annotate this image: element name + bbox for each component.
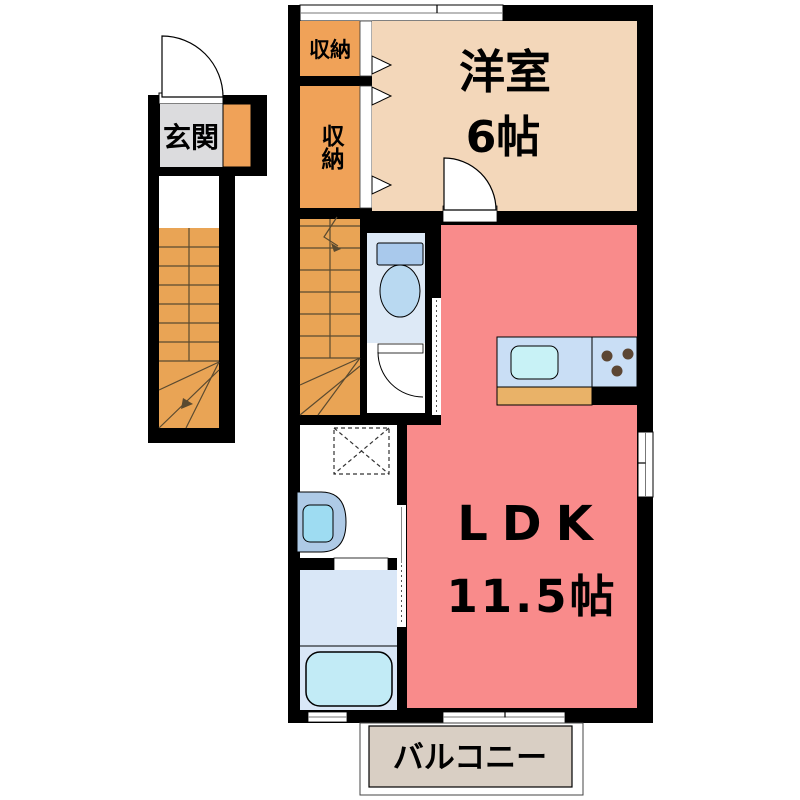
ldk-label: LDK [457, 496, 607, 552]
balcony: バルコニー [360, 723, 583, 795]
floor-plan: 玄関 収納 [0, 0, 800, 800]
stove-burner-icon [612, 366, 623, 377]
entrance-label: 玄関 [163, 121, 219, 154]
washing-machine-pan-icon [334, 428, 389, 474]
closet-top-label: 収納 [309, 38, 351, 62]
kitchen-counter [497, 337, 637, 405]
kitchen-counter-front-dark [592, 387, 637, 405]
ldk-size-label: 11.5帖 [446, 570, 617, 623]
kitchen-sink-icon [511, 346, 558, 379]
washroom-sliding-door-icon [397, 505, 406, 627]
toilet-bowl-icon [380, 265, 420, 317]
right-window-icon [638, 432, 653, 497]
top-window-icon [300, 5, 503, 21]
ldk-floor [407, 225, 637, 708]
shoe-cabinet [223, 104, 251, 167]
western-room-size-label: 6帖 [466, 112, 541, 163]
ldk-sliding-door-icon [432, 298, 441, 415]
closet-door-top [360, 21, 372, 76]
hallway-floor [367, 343, 425, 413]
floor-plan-canvas: 玄関 収納 [0, 0, 800, 800]
balcony-label: バルコニー [393, 740, 547, 776]
closet-door-side [360, 86, 372, 208]
bathtub-icon [306, 652, 392, 706]
toilet-tank-icon [377, 243, 423, 265]
kitchen-counter-front [497, 387, 592, 405]
washbasin-bowl-icon [303, 505, 333, 542]
main-unit: 収納 収納 洋室 6帖 [288, 5, 653, 723]
stove-burner-icon [623, 349, 634, 360]
western-room-label: 洋室 [459, 45, 551, 99]
bathroom-window-icon [308, 712, 347, 722]
closet-side-label: 収納 [317, 124, 345, 171]
balcony-sliding-window-icon [443, 712, 565, 723]
outside-stairs-block [148, 167, 235, 443]
stove-burner-icon [602, 351, 613, 362]
